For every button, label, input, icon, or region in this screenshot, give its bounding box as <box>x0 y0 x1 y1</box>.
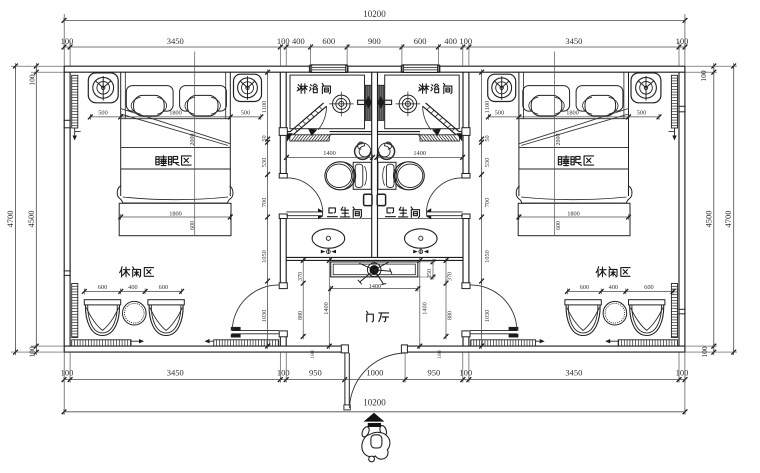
svg-text:100: 100 <box>676 36 689 46</box>
svg-text:400: 400 <box>128 284 137 291</box>
svg-text:500: 500 <box>98 110 107 117</box>
svg-text:600: 600 <box>159 284 168 291</box>
svg-text:100: 100 <box>676 367 689 377</box>
svg-text:370: 370 <box>298 272 304 281</box>
svg-text:1400: 1400 <box>323 302 330 315</box>
svg-text:880: 880 <box>447 311 453 320</box>
svg-text:1050: 1050 <box>261 250 268 263</box>
svg-text:1800: 1800 <box>567 211 580 218</box>
svg-text:100: 100 <box>699 70 708 82</box>
svg-text:1800: 1800 <box>169 211 182 218</box>
svg-text:100: 100 <box>28 74 37 86</box>
svg-text:1400: 1400 <box>413 150 426 157</box>
svg-text:100: 100 <box>459 36 472 46</box>
svg-text:370: 370 <box>447 272 453 281</box>
svg-text:4700: 4700 <box>5 211 15 228</box>
svg-text:1030: 1030 <box>484 310 491 323</box>
svg-text:1400: 1400 <box>421 302 428 315</box>
svg-text:600: 600 <box>322 36 335 46</box>
svg-text:1400: 1400 <box>323 150 336 157</box>
svg-text:100: 100 <box>61 367 74 377</box>
svg-text:3450: 3450 <box>565 36 582 46</box>
svg-text:4500: 4500 <box>26 211 36 228</box>
svg-text:600: 600 <box>556 221 562 230</box>
svg-text:500: 500 <box>637 110 646 117</box>
svg-text:250: 250 <box>427 269 433 278</box>
svg-text:900: 900 <box>368 36 381 46</box>
svg-text:400: 400 <box>609 284 618 291</box>
svg-text:1030: 1030 <box>261 310 268 323</box>
svg-text:50: 50 <box>261 135 268 141</box>
svg-text:100: 100 <box>459 367 472 377</box>
svg-text:700: 700 <box>261 198 268 207</box>
svg-text:180: 180 <box>310 350 316 359</box>
svg-text:600: 600 <box>414 36 427 46</box>
svg-text:400: 400 <box>444 36 457 46</box>
svg-text:880: 880 <box>298 311 304 320</box>
svg-text:50: 50 <box>484 135 491 141</box>
svg-text:1800: 1800 <box>169 110 182 117</box>
svg-text:10200: 10200 <box>363 398 386 408</box>
svg-text:180: 180 <box>437 350 443 359</box>
svg-text:530: 530 <box>484 158 491 167</box>
svg-text:950: 950 <box>428 367 441 377</box>
svg-text:1000: 1000 <box>366 367 383 377</box>
svg-text:600: 600 <box>190 221 196 230</box>
svg-text:500: 500 <box>241 110 250 117</box>
svg-text:700: 700 <box>484 198 491 207</box>
svg-text:1100: 1100 <box>484 101 491 113</box>
svg-text:3450: 3450 <box>565 367 582 377</box>
svg-text:100: 100 <box>277 367 290 377</box>
svg-text:2000: 2000 <box>190 134 196 146</box>
svg-text:950: 950 <box>309 367 322 377</box>
svg-text:100: 100 <box>277 36 290 46</box>
svg-text:600: 600 <box>644 284 653 291</box>
svg-text:600: 600 <box>98 284 107 291</box>
svg-text:530: 530 <box>261 158 268 167</box>
svg-text:3450: 3450 <box>167 36 184 46</box>
svg-text:3450: 3450 <box>167 367 184 377</box>
svg-text:4700: 4700 <box>723 211 733 228</box>
svg-text:400: 400 <box>292 36 305 46</box>
svg-text:1100: 1100 <box>261 101 268 113</box>
svg-text:2000: 2000 <box>556 134 562 146</box>
svg-text:1800: 1800 <box>566 110 579 117</box>
svg-text:1050: 1050 <box>484 250 491 263</box>
svg-text:500: 500 <box>495 110 504 117</box>
svg-text:1400: 1400 <box>369 283 382 290</box>
svg-text:600: 600 <box>580 284 589 291</box>
svg-text:4500: 4500 <box>703 211 713 228</box>
svg-text:10200: 10200 <box>363 9 386 19</box>
svg-text:100: 100 <box>61 36 74 46</box>
